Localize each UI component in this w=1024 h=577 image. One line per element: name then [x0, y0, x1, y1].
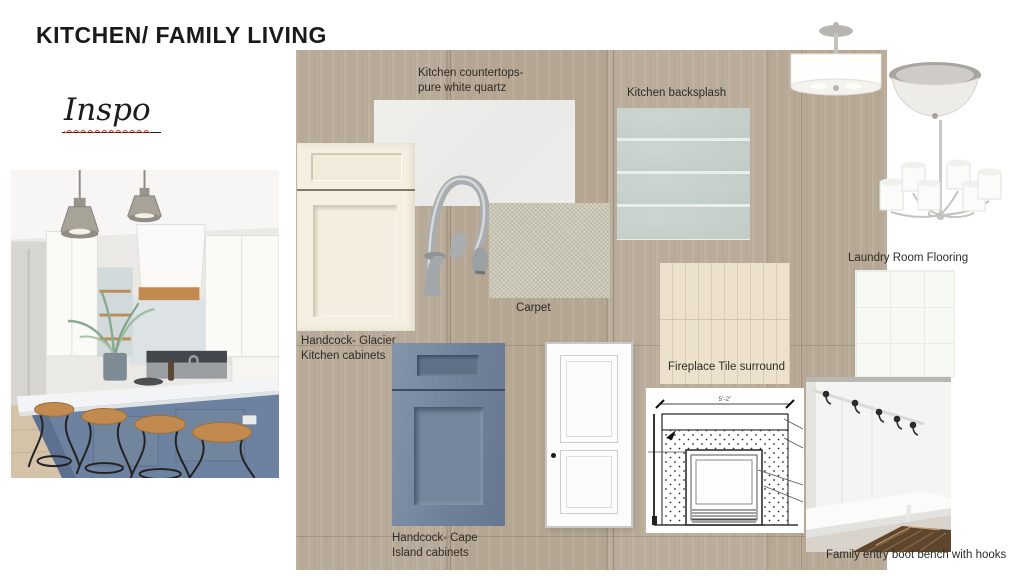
faucet-image [418, 166, 496, 298]
door-panel-lower [560, 450, 618, 514]
faucet-art [418, 166, 496, 298]
mood-board-slide: KITCHEN/ FAMILY LIVING Inspo [0, 0, 1024, 577]
wood-seam [296, 536, 887, 537]
cabinet-door-panel [414, 407, 483, 505]
backsplash-tile [617, 108, 750, 138]
cabinet-door-panel [313, 205, 397, 317]
cape-label: Handcock- Cape Island cabinets [392, 531, 478, 561]
fireplace-dimension-text: 5'-2" [719, 396, 733, 403]
backsplash-label: Kitchen backsplash [627, 86, 726, 101]
carpet-label: Carpet [516, 301, 551, 316]
kitchen-photo [11, 170, 279, 478]
cape-cabinet-sample [392, 343, 505, 526]
countertops-label: Kitchen countertops- pure white quartz [418, 66, 523, 96]
cabinet-divider [392, 389, 505, 391]
cabinet-divider [297, 189, 415, 191]
laundry-flooring-label: Laundry Room Flooring [848, 251, 968, 266]
chandelier-image [878, 120, 1008, 233]
glacier-cabinet-sample [297, 143, 415, 331]
kitchen-photo-art [11, 170, 279, 478]
cabinet-drawer-front [417, 355, 479, 376]
flush-mount-image [888, 60, 983, 120]
drum-pendant-art [788, 20, 884, 100]
bench-label: Family entry boot bench with hooks [826, 548, 1006, 563]
carpet-swatch [489, 203, 610, 298]
door-knob [551, 453, 556, 458]
mudroom-bench-image [806, 377, 951, 552]
glacier-label: Handcock- Glacier Kitchen cabinets [301, 334, 396, 364]
laundry-flooring-swatch [855, 270, 955, 377]
fireplace-tile-label: Fireplace Tile surround [668, 360, 785, 375]
drum-pendant-image [788, 20, 884, 100]
chandelier-art [878, 120, 1008, 233]
backsplash-tile [617, 174, 750, 204]
flush-mount-art [888, 60, 983, 120]
door-panel-upper [560, 355, 618, 443]
tile-seam [660, 319, 790, 320]
inspo-script-label: Inspo [62, 92, 161, 133]
backsplash-tile [617, 207, 750, 239]
backsplash-tile-swatch [617, 108, 750, 240]
mudroom-art [806, 377, 951, 552]
fireplace-drawing: 5'-2" [646, 388, 804, 533]
page-title: KITCHEN/ FAMILY LIVING [36, 22, 327, 49]
cabinet-drawer-front [311, 153, 402, 181]
backsplash-tile [617, 141, 750, 171]
fireplace-drawing-art: 5'-2" [646, 388, 804, 533]
white-door-image [545, 342, 633, 528]
